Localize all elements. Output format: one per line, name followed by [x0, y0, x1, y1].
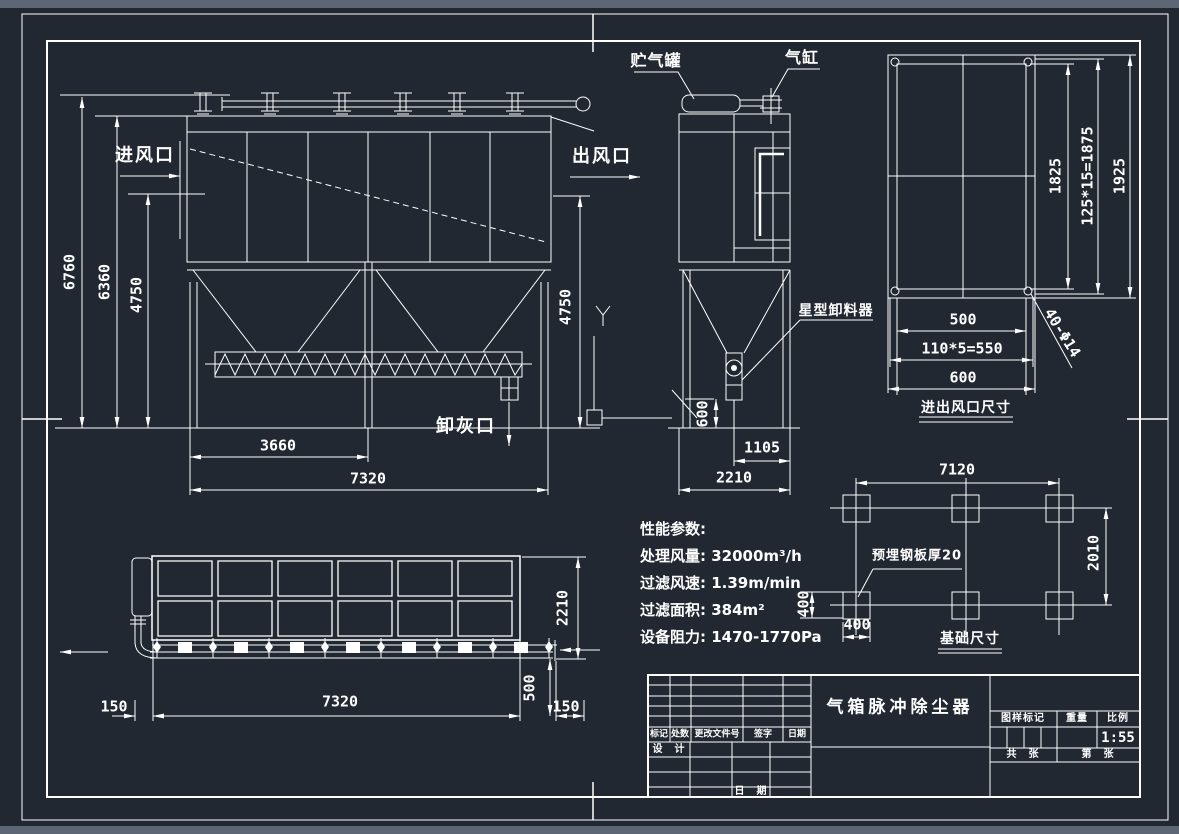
air-tank-label: 贮气罐 — [630, 53, 681, 69]
dim-plan-margin-left: 150 — [100, 700, 127, 715]
outlet-label: 出风口 — [572, 148, 632, 166]
ash-outlet-label: 卸灰口 — [436, 418, 496, 436]
access-door — [760, 154, 784, 236]
dim-front-total-height: 6760 — [63, 254, 78, 290]
dim-port-bolt-pitch-v: 125*15=1875 — [1081, 126, 1096, 225]
dim-front-half-width: 3660 — [260, 439, 296, 454]
dim-plan-width: 7320 — [322, 695, 358, 710]
specs-heading: 性能参数: — [640, 516, 822, 543]
scale-value: 1:55 — [1101, 731, 1135, 745]
sheet-number: 第 张 — [1082, 750, 1115, 760]
bolt-hole — [1024, 287, 1032, 295]
spec-filter-area: 过滤面积: 384m² — [640, 597, 822, 624]
rev-header-docno: 更改文件号 — [694, 731, 739, 740]
foundation-view-title: 基础尺寸 — [940, 632, 1000, 646]
star-unloader-label: 星型卸料器 — [799, 304, 874, 318]
pipe-elbow — [576, 97, 590, 111]
dim-side-depth: 2210 — [716, 471, 752, 486]
bolt-hole — [891, 287, 899, 295]
plan-extension-lines — [135, 557, 586, 721]
valve-blocks — [178, 642, 528, 653]
side-elevation-view — [634, 69, 873, 495]
filter-panels — [158, 561, 512, 636]
spec-filter-velocity: 过滤风速: 1.39m/min — [640, 570, 822, 597]
rev-header-count: 处数 — [671, 731, 689, 740]
bolt-hole — [891, 58, 899, 66]
inlet-label: 进风口 — [115, 147, 175, 165]
cad-drawing-screen: 进风口 出风口 贮气罐 气缸 星型卸料器 卸灰口 预埋钢板厚20 6760 63… — [0, 0, 1179, 834]
date-label: 日 期 — [735, 787, 768, 797]
performance-specs: 性能参数: 处理风量: 32000m³/h 过滤风速: 1.39m/min 过滤… — [640, 516, 822, 651]
dim-foundation-span: 7120 — [939, 463, 975, 478]
dim-port-inner-width: 500 — [949, 313, 976, 328]
dim-side-hopper-outlet: 600 — [696, 400, 711, 427]
dim-port-outer-width: 600 — [949, 371, 976, 386]
gas-cylinder-label: 气缸 — [785, 50, 819, 66]
rev-header-signature: 签字 — [754, 731, 772, 740]
dim-foundation-pad-w: 400 — [843, 618, 870, 633]
weight-header: 重量 — [1066, 714, 1088, 724]
pulse-valves — [194, 93, 524, 114]
dim-port-outer-height: 1925 — [1113, 158, 1128, 194]
dim-plan-offset: 500 — [523, 674, 538, 701]
air-manifold — [130, 616, 557, 661]
rev-header-date: 日期 — [788, 731, 806, 740]
design-label: 设 计 — [653, 745, 686, 755]
spec-resistance: 设备阻力: 1470-1770Pa — [640, 624, 822, 651]
rev-header-mark: 标记 — [650, 731, 668, 740]
scale-header: 比例 — [1107, 714, 1129, 724]
dim-front-left-height: 4750 — [130, 277, 145, 313]
drawing-title: 气箱脉冲除尘器 — [827, 700, 974, 717]
dim-foundation-depth: 2010 — [1087, 535, 1102, 571]
spec-airflow: 处理风量: 32000m³/h — [640, 543, 822, 570]
dim-port-inner-height: 1825 — [1049, 158, 1064, 194]
stamp-header: 图样标记 — [1001, 714, 1045, 724]
dim-front-body-height: 6360 — [98, 264, 113, 300]
inlet-pipe-tank — [132, 558, 152, 616]
dim-front-width: 7320 — [350, 472, 386, 487]
dim-side-half-depth: 1105 — [744, 441, 780, 456]
dim-plan-margin-right: 150 — [552, 700, 579, 715]
dim-front-right-height: 4750 — [559, 289, 574, 325]
dim-port-bolt-pitch-h: 110*5=550 — [921, 342, 1002, 357]
port-size-view — [888, 55, 1136, 422]
drawing-canvas — [0, 0, 1179, 834]
dim-plan-depth: 2210 — [556, 590, 571, 626]
embedded-plate-label: 预埋钢板厚20 — [872, 550, 962, 563]
sheet-total: 共 张 — [1007, 750, 1040, 760]
air-tank-shape — [682, 95, 740, 112]
bolt-hole — [1024, 58, 1032, 66]
port-view-title: 进出风口尺寸 — [921, 401, 1011, 415]
